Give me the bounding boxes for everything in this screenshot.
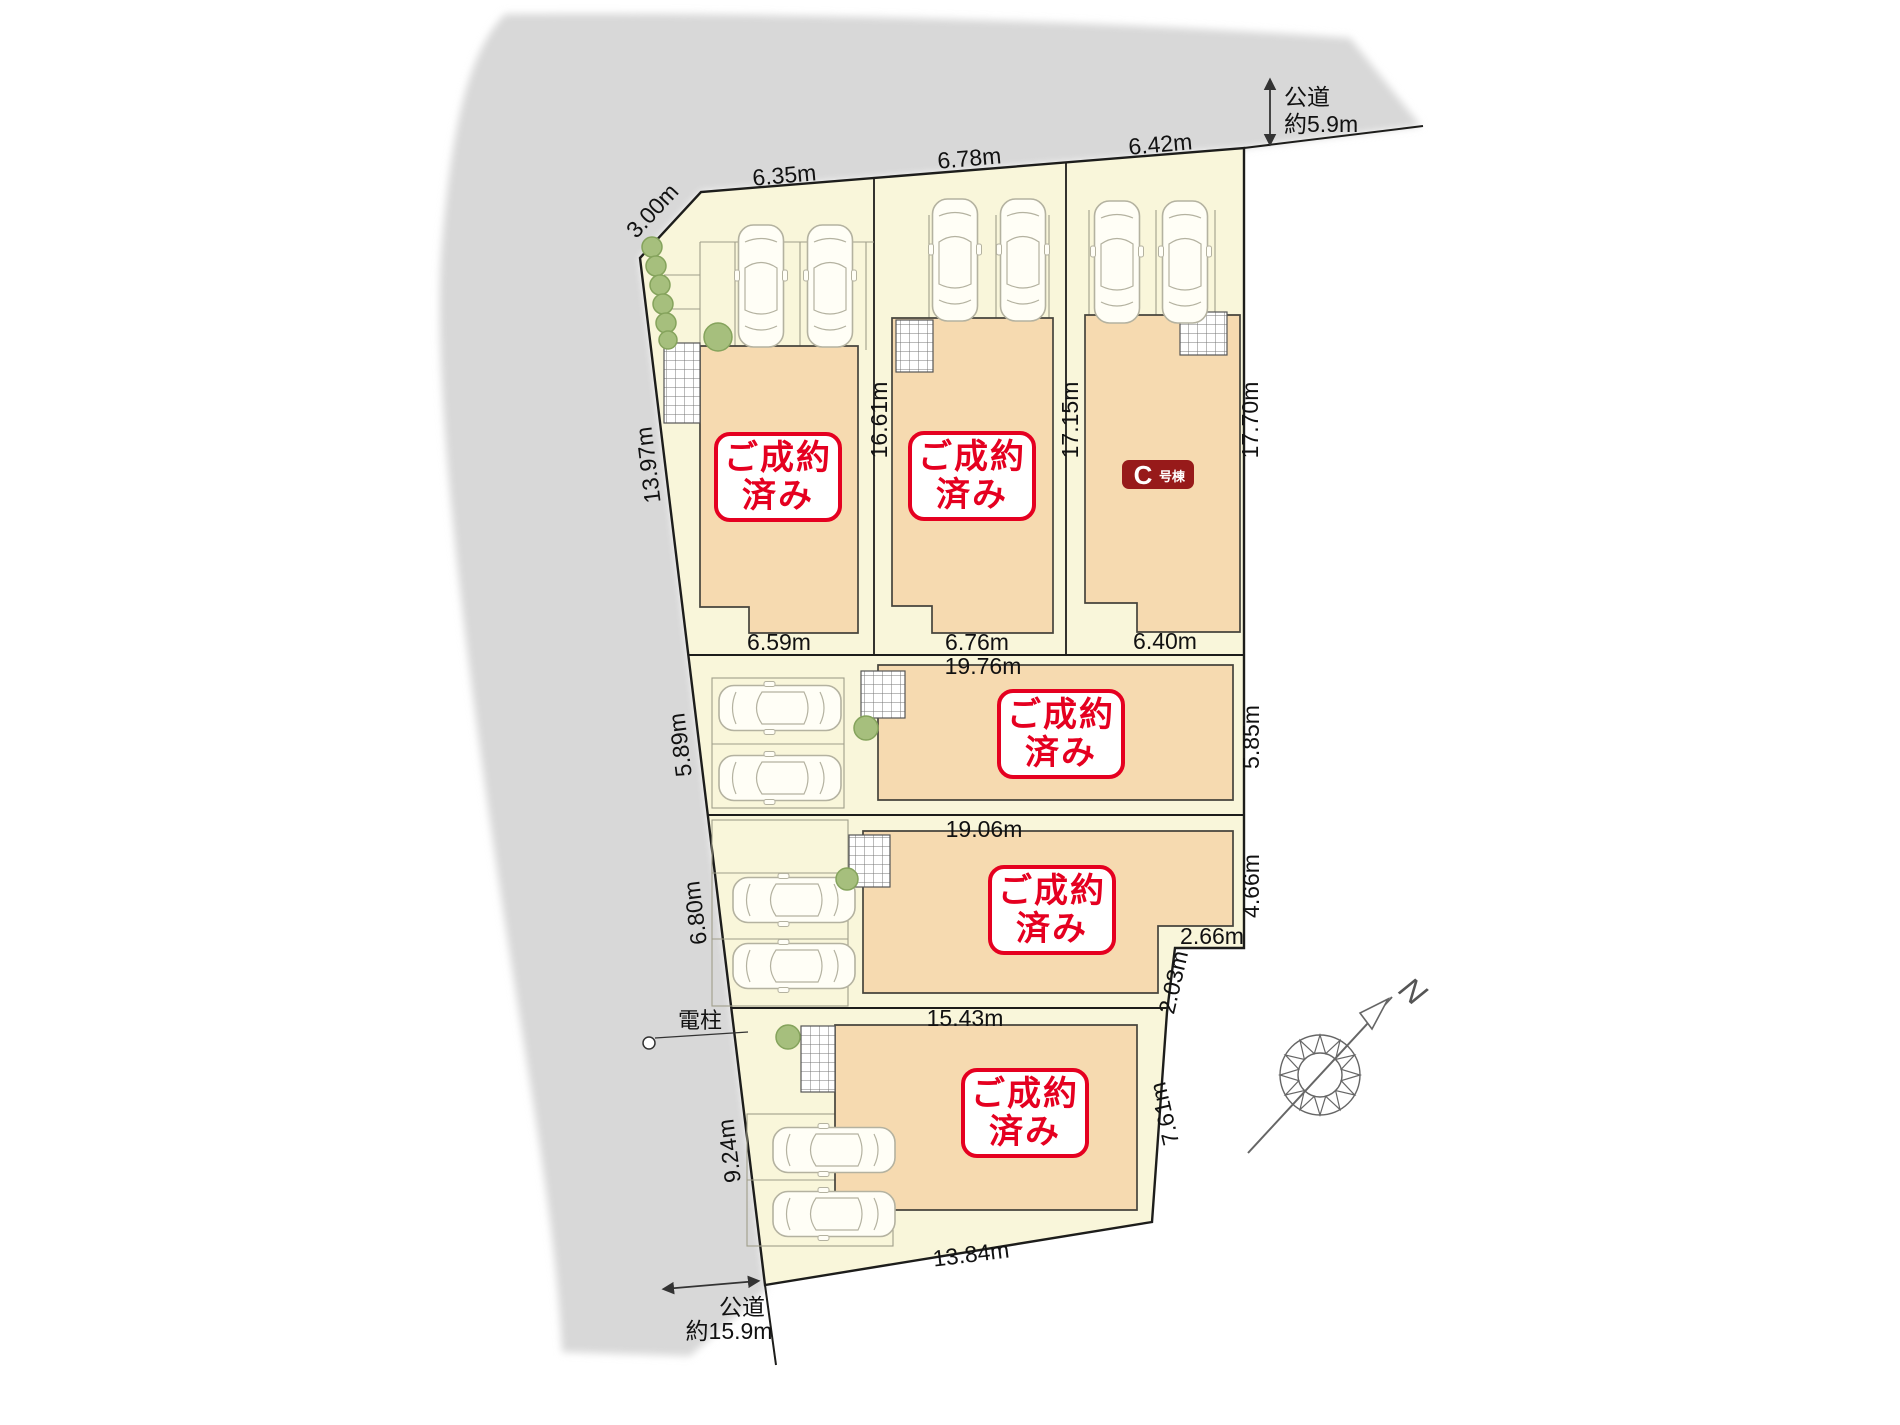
dim-row1-right: 17.70m — [1237, 382, 1263, 459]
road-bottom-name: 公道 — [719, 1294, 765, 1320]
sold-stamp-line2: 済み — [936, 476, 1008, 514]
sold-stamp-lot5: ご成約 済み — [990, 867, 1114, 953]
dim-lot5-right: 4.66m — [1238, 854, 1264, 918]
dim-row1-top-2: 6.78m — [936, 142, 1002, 173]
site-plan-page: ご成約 済み ご成約 済み ご成約 済み ご成約 済み ご成約 済み C 号棟 — [0, 0, 1900, 1425]
dim-row1-bottom-3: 6.40m — [1133, 628, 1197, 654]
car-icon — [773, 1188, 895, 1241]
sold-stamp-line2: 済み — [989, 1113, 1061, 1151]
sold-stamp-line2: 済み — [1016, 910, 1088, 948]
tree-icon — [704, 323, 732, 351]
car-icon — [1091, 201, 1144, 323]
car-icon — [719, 752, 841, 805]
compass: N — [1248, 970, 1434, 1153]
dim-lot6-top: 15.43m — [927, 1005, 1004, 1031]
road-top-width: 約5.9m — [1284, 111, 1358, 137]
dim-row1-bottom-2: 6.76m — [945, 629, 1009, 655]
road-bottom-width: 約15.9m — [686, 1318, 773, 1344]
dim-row1-top-1: 6.35m — [751, 159, 817, 190]
dim-lot4-top: 19.76m — [945, 653, 1022, 679]
tree-icon — [650, 275, 670, 295]
road-top-name: 公道 — [1284, 84, 1330, 110]
utility-pole-label: 電柱 — [678, 1008, 722, 1033]
unit-c-letter: C — [1134, 460, 1153, 490]
utility-pole-icon — [643, 1037, 655, 1049]
car-icon — [1159, 201, 1212, 323]
sold-stamp-line1: ご成約 — [971, 1075, 1079, 1113]
tree-icon — [653, 294, 673, 314]
sold-stamp-lot6: ご成約 済み — [963, 1070, 1087, 1156]
sold-stamp-lot4: ご成約 済み — [999, 691, 1123, 777]
dim-row1-bottom-1: 6.59m — [747, 629, 811, 655]
tree-icon — [642, 237, 662, 257]
sold-stamp-lot2: ご成約 済み — [910, 433, 1034, 519]
sold-stamp-line1: ご成約 — [918, 438, 1026, 476]
sold-stamp-line1: ご成約 — [724, 439, 832, 477]
tree-icon — [776, 1025, 800, 1049]
dim-divider-left: 16.61m — [866, 382, 892, 459]
dim-lot5-top: 19.06m — [946, 816, 1023, 842]
car-icon — [804, 225, 857, 347]
car-icon — [735, 225, 788, 347]
dim-lot5-step: 2.66m — [1180, 923, 1244, 949]
tree-icon — [854, 716, 878, 740]
sold-stamp-line2: 済み — [1025, 734, 1097, 772]
site-plan-drawing: ご成約 済み ご成約 済み ご成約 済み ご成約 済み ご成約 済み C 号棟 — [0, 0, 1900, 1425]
compass-arrowhead-icon — [1360, 999, 1388, 1029]
tree-icon — [659, 331, 677, 349]
porch-hatch-4 — [861, 671, 905, 718]
sold-stamp-line1: ご成約 — [998, 872, 1106, 910]
car-icon — [719, 682, 841, 735]
tree-icon — [646, 256, 666, 276]
porch-hatch-6 — [801, 1026, 835, 1092]
sold-stamp-lot1: ご成約 済み — [716, 434, 840, 520]
car-icon — [929, 199, 982, 321]
porch-hatch-2 — [896, 320, 933, 372]
sold-stamp-line1: ご成約 — [1007, 696, 1115, 734]
car-icon — [997, 199, 1050, 321]
porch-hatch-1 — [664, 343, 700, 423]
dim-divider-right: 17.15m — [1057, 382, 1083, 459]
tree-icon — [656, 313, 676, 333]
dim-row1-top-3: 6.42m — [1127, 128, 1193, 159]
tree-icon — [836, 868, 858, 890]
unit-c-suffix: 号棟 — [1159, 469, 1186, 484]
car-icon — [773, 1124, 895, 1177]
sold-stamp-line2: 済み — [742, 477, 814, 515]
car-icon — [733, 940, 855, 993]
dim-lot4-right: 5.85m — [1238, 705, 1264, 769]
unit-c-badge: C 号棟 — [1122, 460, 1194, 490]
compass-north-label: N — [1393, 970, 1435, 1013]
